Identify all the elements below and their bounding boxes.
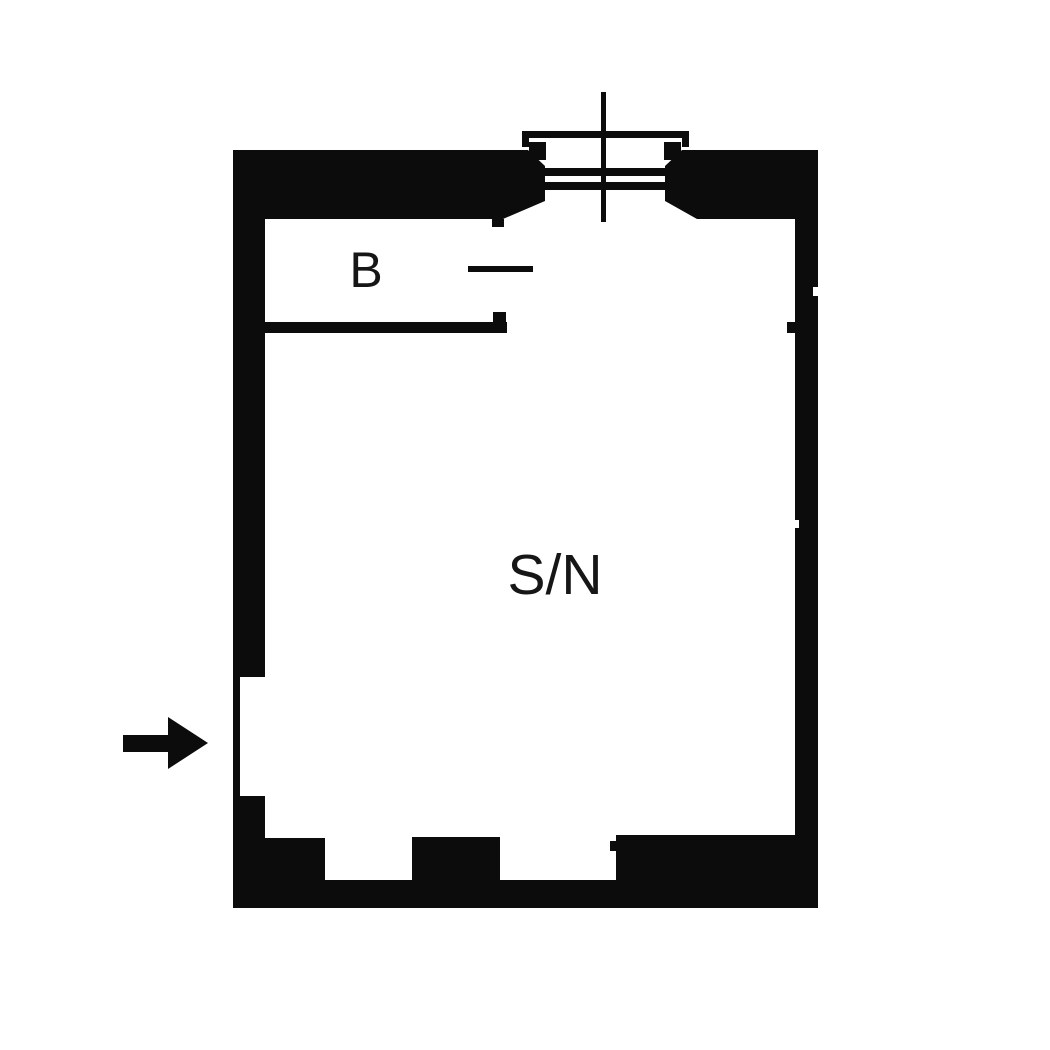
wall-right-inner-notch (795, 520, 799, 528)
entrance-arrow-head (168, 717, 208, 769)
wall-right-outer-notch (813, 287, 819, 296)
wall-left-upper (233, 150, 265, 677)
wall-tick-right-inner (787, 322, 795, 333)
door-opening-line (468, 266, 533, 272)
wall-bottom-main (233, 880, 818, 908)
wall-right (795, 150, 818, 908)
entrance-threshold-line (233, 677, 240, 796)
window-frame-top (522, 131, 689, 138)
window-centerline (601, 92, 606, 222)
wall-tick-top-left (492, 219, 504, 227)
room-labels: B S/N (349, 242, 602, 607)
entrance-arrow-shaft (123, 735, 169, 752)
wall-top-left (233, 150, 545, 219)
wall-bottom-pier-right-tick (610, 841, 618, 851)
wall-partition-b (262, 322, 507, 333)
window-jamb-left (529, 142, 546, 160)
walls (123, 92, 818, 908)
wall-bottom-pier-left (263, 838, 325, 882)
floor-plan: B S/N (0, 0, 1050, 1050)
window-glazing-line-lower (536, 182, 676, 190)
room-label-main: S/N (507, 543, 602, 607)
window-frame-left-return (522, 131, 529, 147)
room-label-b: B (349, 242, 382, 298)
wall-bottom-pier-middle (412, 837, 500, 882)
window-jamb-right (664, 142, 681, 160)
wall-partition-b-end-tick (493, 312, 506, 322)
floor-plan-drawing: B S/N (0, 0, 1050, 1050)
window-frame-right-return (682, 131, 689, 147)
window-glazing-line-upper (536, 168, 676, 176)
wall-bottom-pier-right (616, 835, 795, 882)
